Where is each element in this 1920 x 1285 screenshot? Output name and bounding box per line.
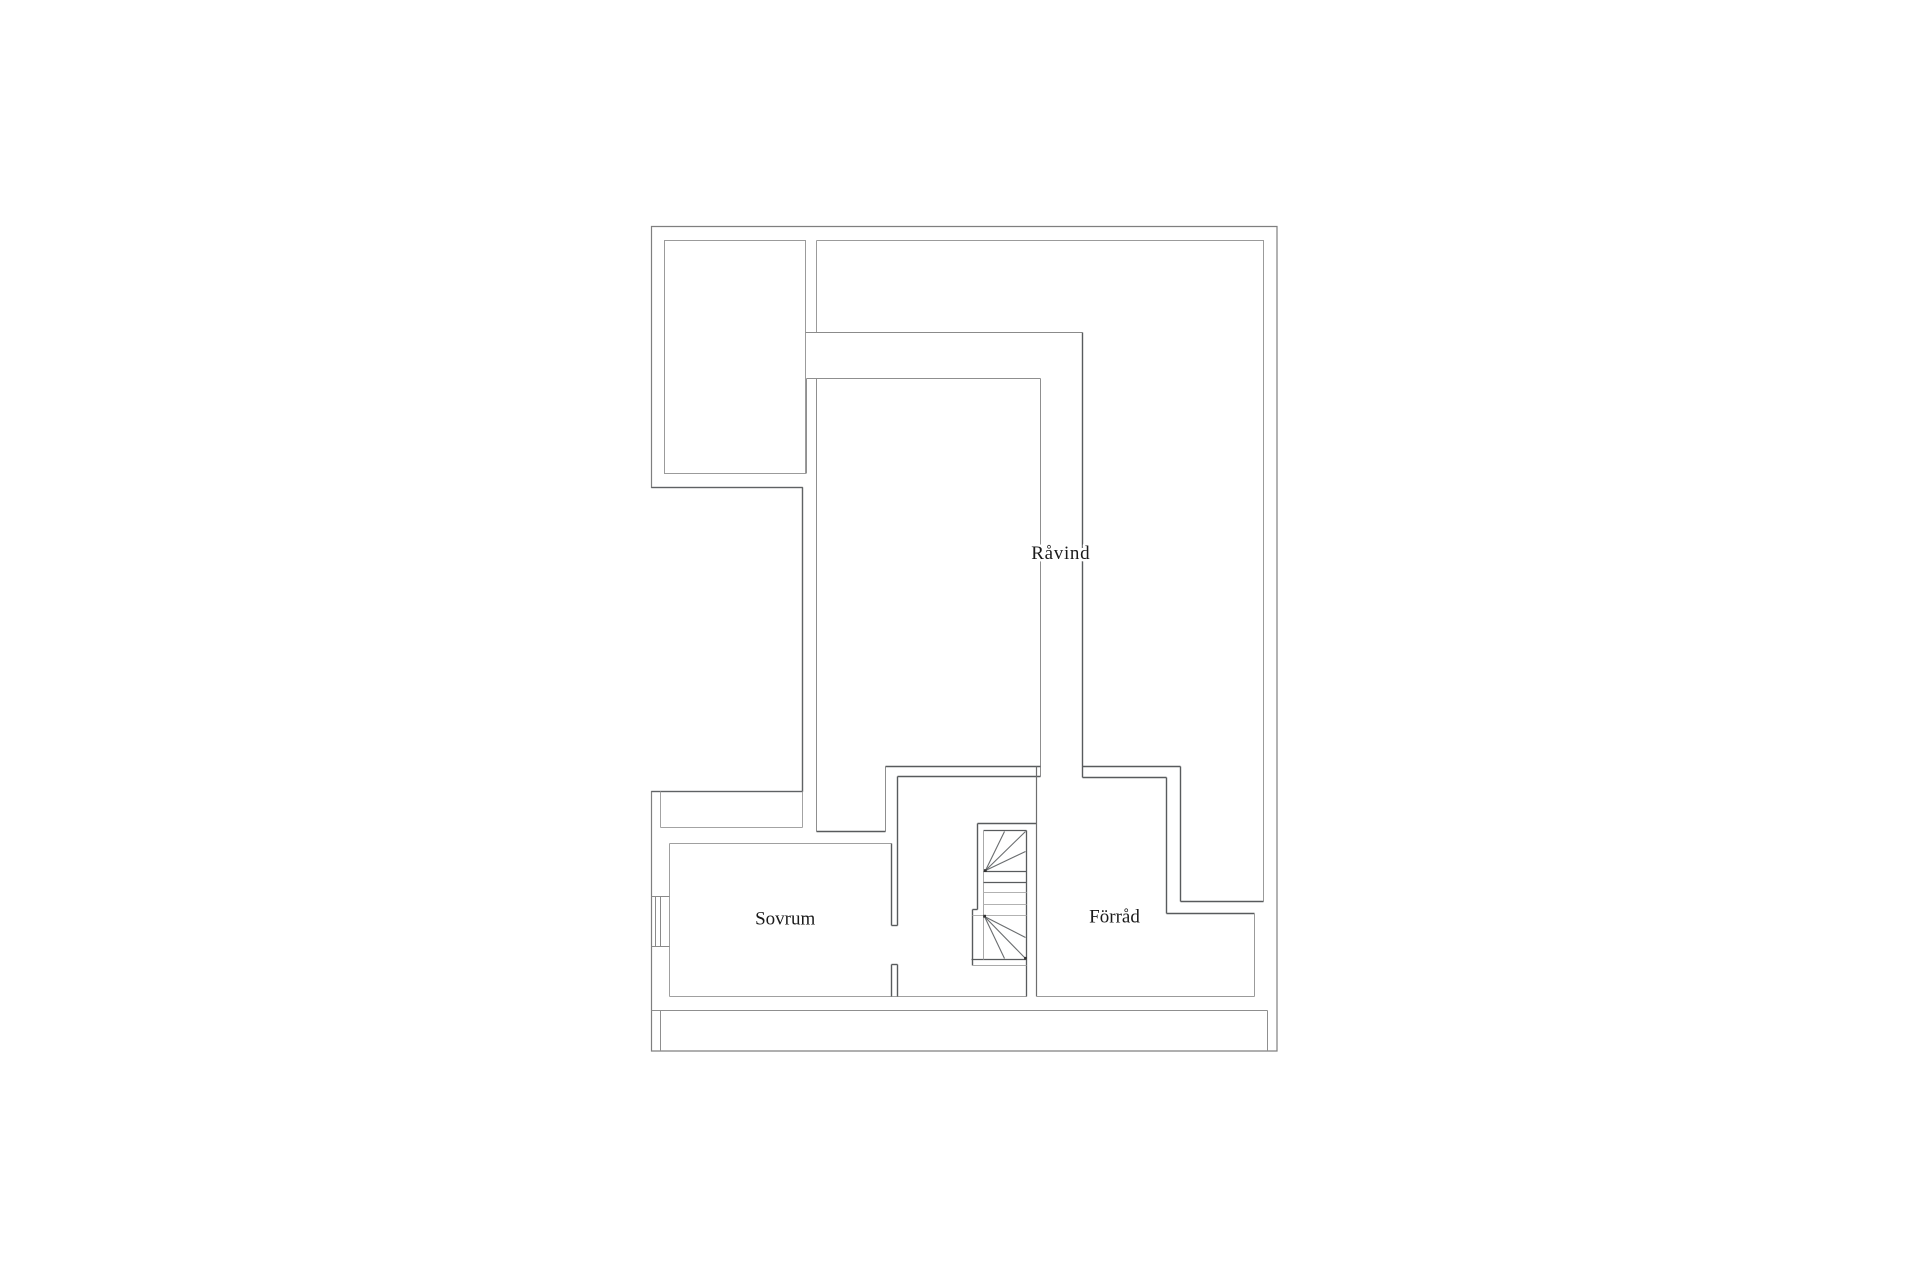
- svg-text:Förråd: Förråd: [1089, 907, 1140, 928]
- svg-text:Sovrum: Sovrum: [755, 909, 815, 930]
- svg-text:Råvind: Råvind: [1031, 543, 1090, 564]
